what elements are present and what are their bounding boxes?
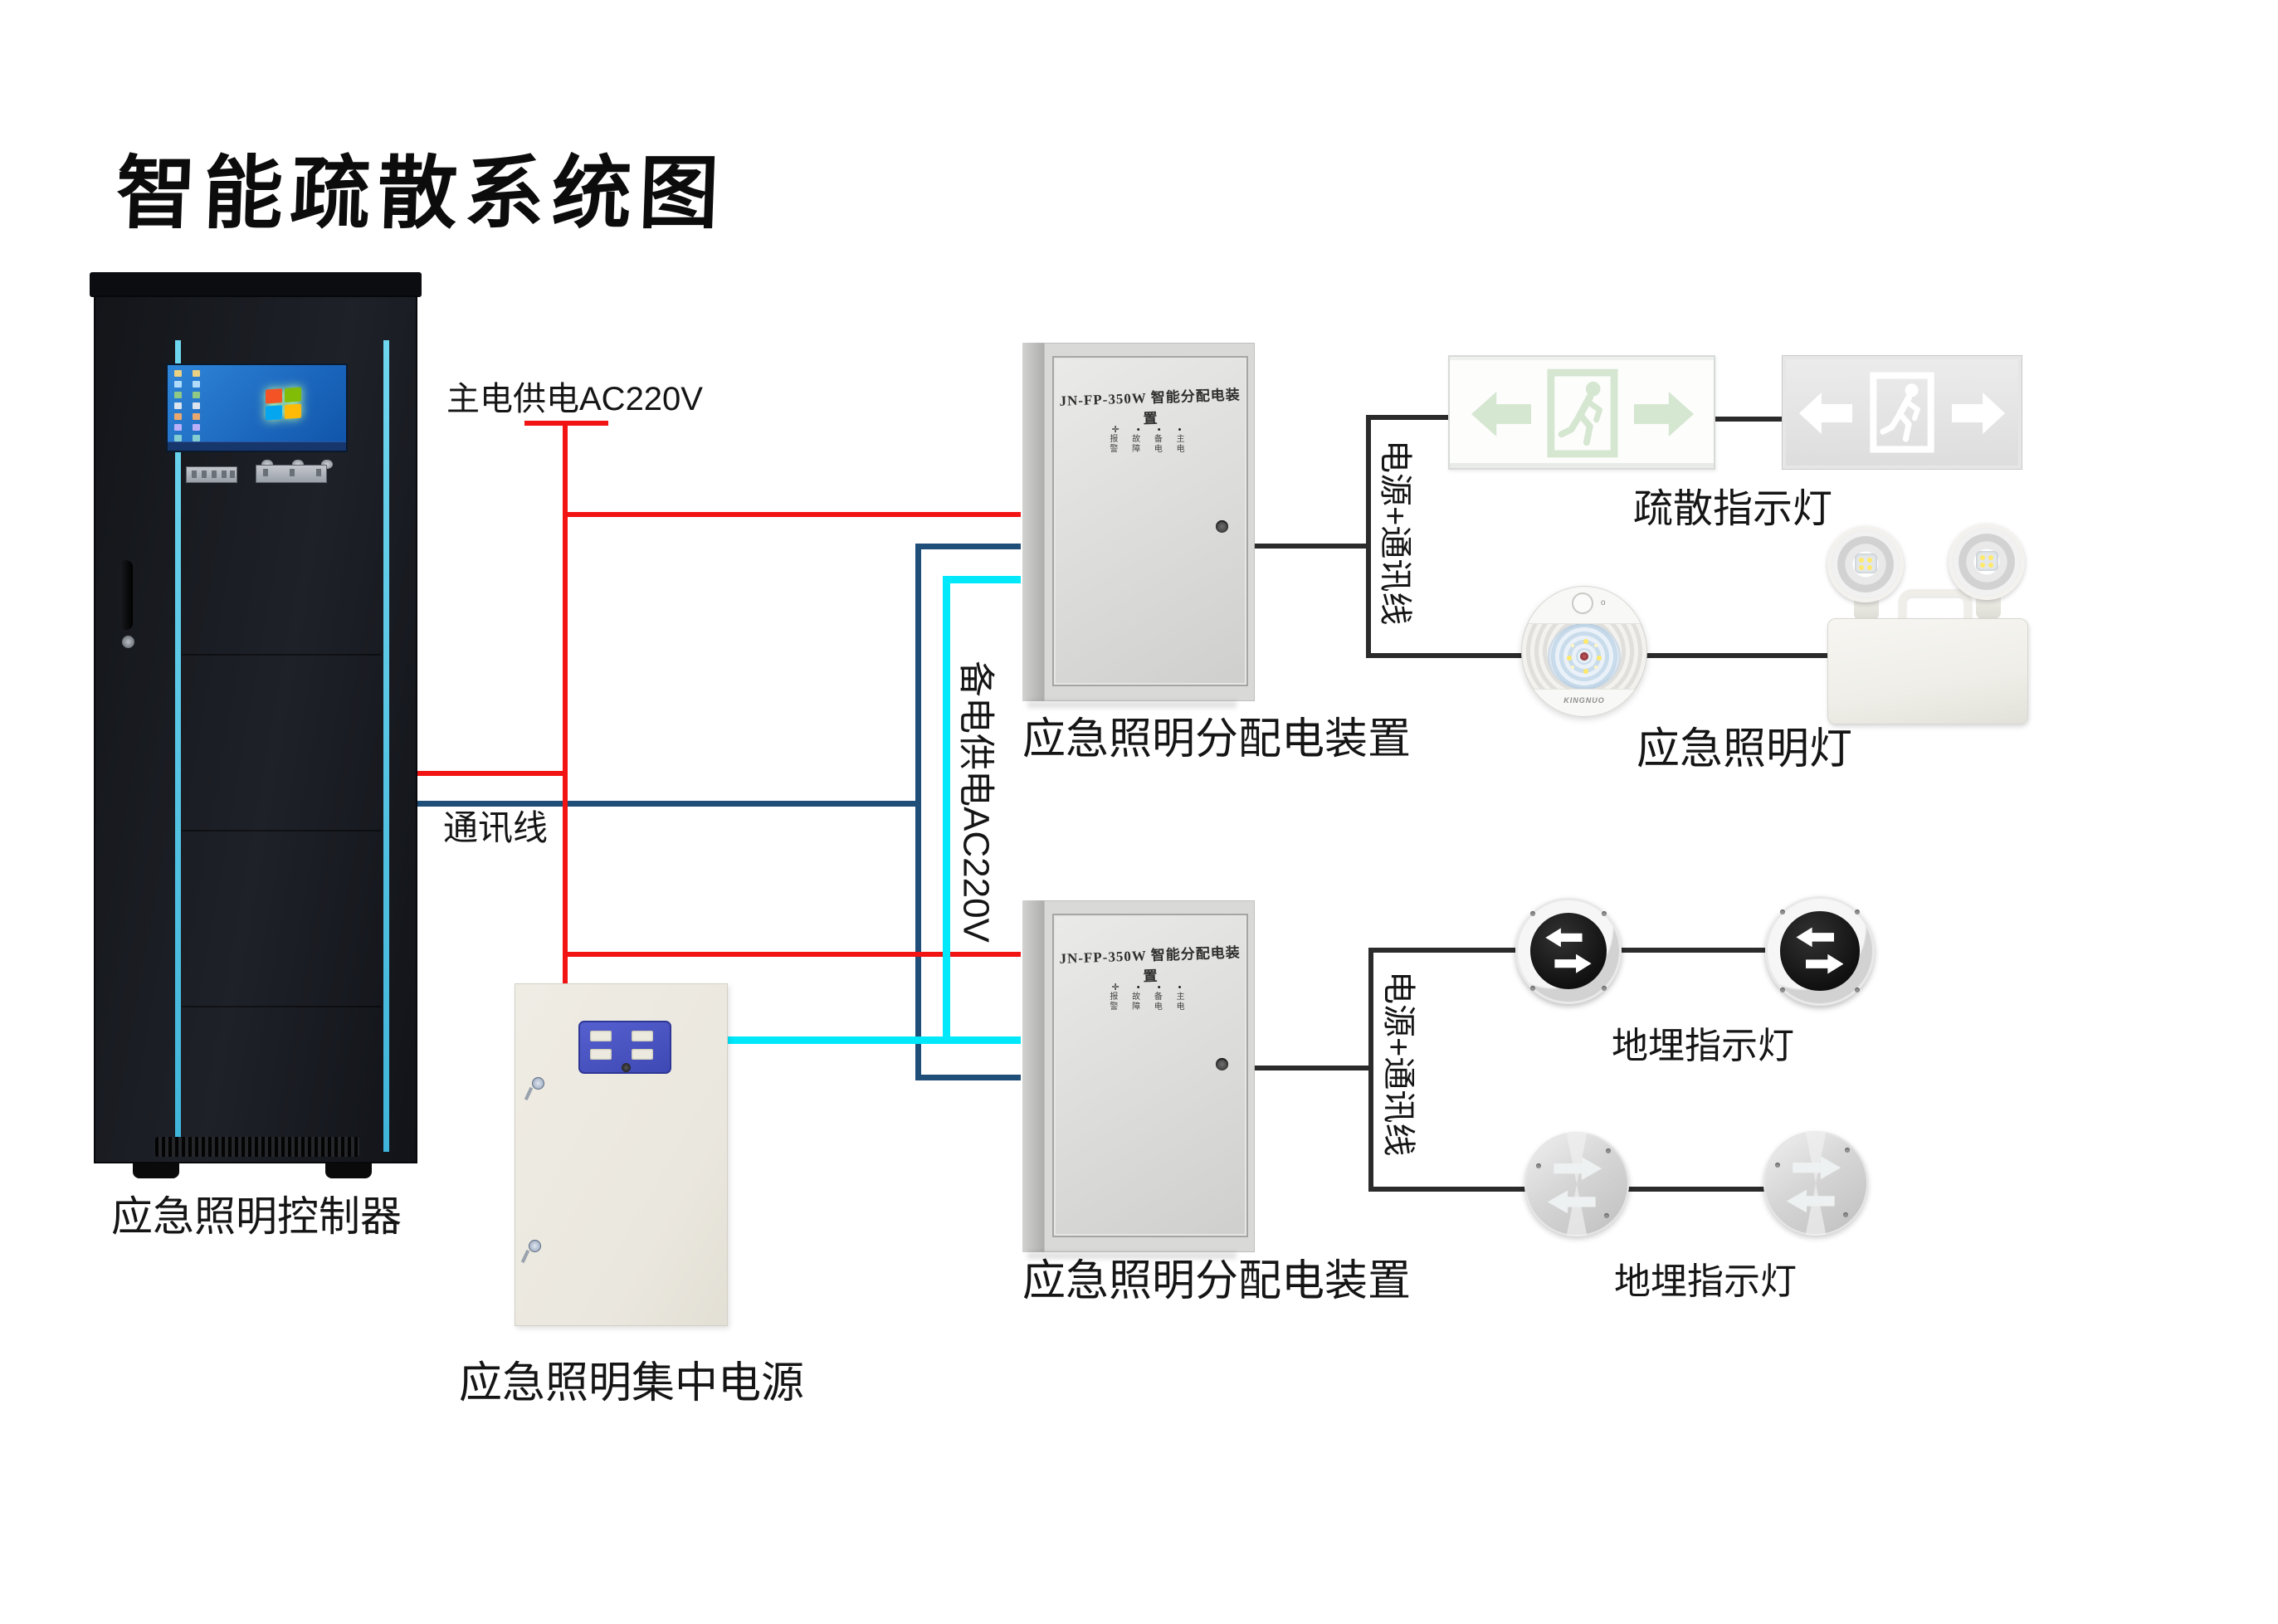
comm-line-vertical — [915, 544, 921, 1080]
main-power-line-cabinet — [408, 771, 568, 776]
box-door: JN-FP-350W 智能分配电装置 ✛ • • • 报 故 备 主 警 障 电… — [1052, 356, 1248, 686]
cabinet-button-panel-right — [256, 465, 327, 483]
ground-arrow-right-icon — [1806, 954, 1844, 974]
central-power-supply — [515, 983, 728, 1326]
cabinet-body — [94, 295, 417, 1163]
exit-arrow-right-icon — [1952, 393, 2005, 434]
controller-label: 应急照明控制器 — [111, 1193, 402, 1241]
distribution-box-1-label: 应急照明分配电装置 — [1022, 715, 1411, 765]
central-power-label: 应急照明集中电源 — [459, 1359, 804, 1409]
twin-lamp-head-left — [1827, 526, 1904, 602]
box-side-panel — [1022, 900, 1044, 1252]
box-led-indicators: ✛ • • • 报 故 备 主 警 障 电 电 — [1054, 424, 1246, 455]
distribution-box-1: JN-FP-350W 智能分配电装置 ✛ • • • 报 故 备 主 警 障 电… — [1022, 343, 1255, 701]
cabinet-accent-strip-right — [383, 340, 389, 1152]
exit-arrow-right-icon — [1634, 392, 1694, 436]
comm-line-branch-box1 — [915, 544, 1021, 549]
backup-power-line-horizontal — [724, 1036, 1021, 1044]
cabinet-door-lock — [122, 636, 134, 648]
emergency-lighting-controller-cabinet — [94, 272, 417, 1178]
cabinet-monitor-screen — [166, 363, 348, 452]
power-supply-keyhole-bottom — [529, 1240, 541, 1252]
lamp-top-band: o — [1522, 587, 1646, 624]
ground-arrow-left-icon — [1548, 1191, 1596, 1214]
bus2-label: 电源+通讯线 — [1379, 971, 1417, 1156]
main-power-label: 主电供电AC220V — [446, 380, 703, 418]
ground-light-face — [1530, 913, 1607, 989]
box-side-panel — [1022, 343, 1044, 701]
main-power-line-branch-box2 — [563, 952, 1021, 957]
exit-sign-1 — [1448, 355, 1715, 470]
ground-light-label-1: 地埋指示灯 — [1612, 1026, 1794, 1068]
twin-lamp-body — [1827, 618, 2028, 724]
cabinet-accent-strip-left — [175, 340, 181, 1152]
ground-light-1b — [1765, 896, 1875, 1006]
box-door: JN-FP-350W 智能分配电装置 ✛ • • • 报 故 备 主 警 障 电… — [1052, 914, 1248, 1237]
lamp-test-button — [1572, 593, 1593, 614]
comm-line-cabinet — [408, 801, 921, 807]
cabinet-foot — [325, 1163, 372, 1178]
comm-line-branch-box2 — [915, 1075, 1021, 1080]
distribution-box-2-label: 应急照明分配电装置 — [1022, 1257, 1411, 1307]
connector-box2-to-bus — [1253, 1066, 1373, 1070]
ground-arrow-right-icon — [1554, 954, 1591, 973]
comm-line-label: 通讯线 — [443, 808, 548, 848]
ground-light-2a — [1524, 1132, 1629, 1236]
connector-box1-to-bus — [1253, 544, 1369, 549]
backup-power-line-vertical — [943, 576, 950, 1044]
connector-sign1-sign2 — [1713, 417, 1783, 422]
ground-light-1a — [1515, 898, 1622, 1004]
lamp-led-panel — [1548, 623, 1621, 690]
backup-power-line-branch-box1 — [943, 576, 1021, 583]
backup-power-label: 备电供电AC220V — [954, 661, 997, 943]
exit-sign-2 — [1782, 355, 2022, 470]
emergency-light-label: 应急照明灯 — [1637, 725, 1852, 775]
lamp-brand-text: KINGNUO — [1522, 689, 1646, 716]
cabinet-door-handle — [120, 560, 133, 630]
main-power-line-vertical — [563, 421, 568, 983]
bus1-vertical — [1366, 415, 1371, 658]
windows-logo — [266, 387, 302, 421]
cabinet-foot — [133, 1163, 179, 1178]
ground-light-face — [1780, 911, 1859, 990]
ground-light-label-2: 地埋指示灯 — [1614, 1261, 1797, 1304]
ground-arrow-left-icon — [1787, 1190, 1835, 1213]
distribution-box-2: JN-FP-350W 智能分配电装置 ✛ • • • 报 故 备 主 警 障 电… — [1022, 900, 1255, 1252]
exit-arrow-left-icon — [1471, 392, 1531, 436]
power-supply-keyhole-top — [532, 1077, 544, 1090]
cabinet-button-panel-left — [186, 466, 237, 483]
page-title: 智能疏散系统图 — [115, 148, 728, 239]
running-man-exit-icon — [1546, 367, 1619, 460]
exit-sign-label: 疏散指示灯 — [1633, 486, 1832, 532]
ground-light-2b — [1763, 1131, 1868, 1236]
twin-lamp-head-right — [1949, 524, 2025, 600]
power-supply-control-panel — [578, 1021, 671, 1074]
box-door-lock — [1216, 520, 1228, 533]
ground-arrow-left-icon — [1796, 927, 1834, 947]
taskbar — [168, 441, 346, 451]
power-supply-knob — [622, 1063, 631, 1072]
main-power-line-branch-box1 — [563, 512, 1021, 517]
box-door-lock — [1216, 1058, 1228, 1070]
cabinet-vent-grille — [155, 1137, 359, 1157]
exit-arrow-left-icon — [1799, 393, 1852, 434]
bus1-label: 电源+通讯线 — [1376, 440, 1414, 625]
bus2-vertical — [1368, 948, 1373, 1192]
cabinet-top-cap — [90, 272, 422, 297]
box-led-indicators: ✛ • • • 报 故 备 主 警 障 电 电 — [1054, 982, 1246, 1012]
ground-arrow-left-icon — [1545, 928, 1582, 947]
running-man-exit-icon — [1869, 368, 1935, 457]
evacuation-system-diagram: 智能疏散系统图 主电供电AC220V 通讯线 备电供电AC220V 电源+通讯线… — [0, 0, 2278, 1624]
round-emergency-lamp: o KINGNUO — [1521, 586, 1647, 717]
bus1-to-exit-sign — [1366, 415, 1448, 420]
